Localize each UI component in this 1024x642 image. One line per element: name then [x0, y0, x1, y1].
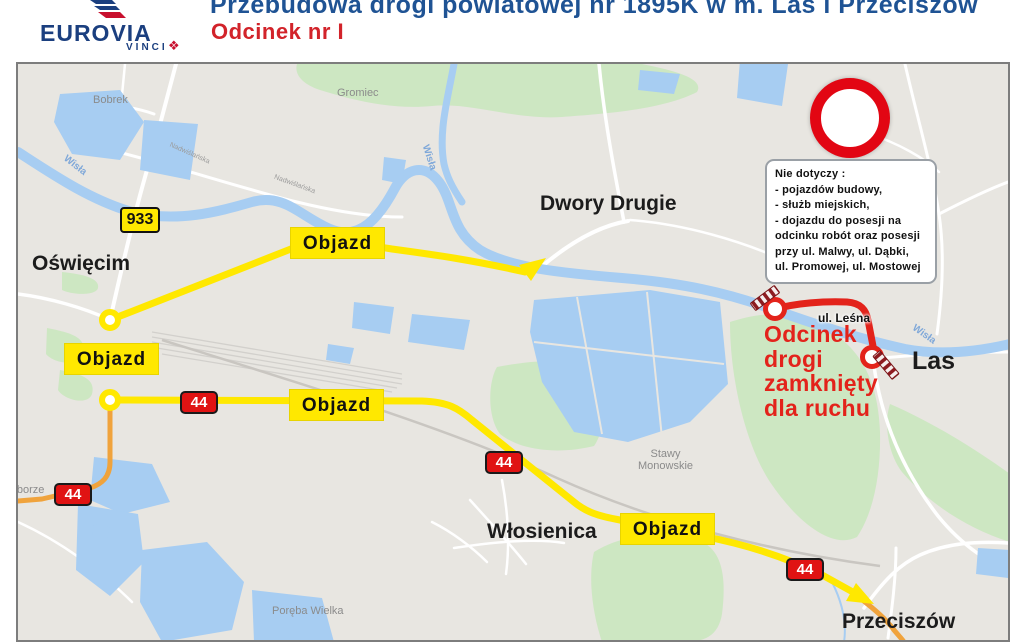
road-badge-44-center: 44: [485, 451, 523, 474]
closed-caption-line: drogi: [764, 347, 878, 372]
note-line: odcinku robót oraz posesji: [775, 229, 927, 245]
detour-arrow-southeast: [846, 583, 874, 604]
town-label-bobrek: Bobrek: [93, 94, 128, 106]
note-title: Nie dotyczy :: [775, 167, 927, 183]
note-line: ul. Promowej, ul. Mostowej: [775, 260, 927, 276]
note-line: przy ul. Malwy, ul. Dąbki,: [775, 245, 927, 261]
road-badge-44-east: 44: [786, 558, 824, 581]
note-line: - pojazdów budowy,: [775, 183, 927, 199]
exemption-note-box: Nie dotyczy : - pojazdów budowy, - służb…: [765, 159, 937, 284]
stawy-line1: Stawy: [618, 448, 713, 460]
eurovia-logo: EUROVIA VINCI ❖: [40, 0, 200, 58]
note-line: - służb miejskich,: [775, 198, 927, 214]
note-line: - dojazdu do posesji na: [775, 214, 927, 230]
stawy-line2: Monowskie: [618, 460, 713, 472]
detour-sign-west: Objazd: [64, 343, 159, 375]
detour-sign-center: Objazd: [289, 389, 384, 421]
page-subtitle: Odcinek nr I: [211, 19, 344, 45]
town-label-gromiec: Gromiec: [337, 87, 379, 99]
detour-sign-southeast: Objazd: [620, 513, 715, 545]
no-entry-sign-icon: [810, 78, 890, 158]
closed-caption-line: zamknięty: [764, 371, 878, 396]
closed-section-caption: Odcinek drogi zamknięty dla ruchu: [764, 322, 878, 420]
road-badge-44-southwest: 44: [54, 483, 92, 506]
town-label-wlosienica: Włosienica: [487, 520, 597, 544]
town-label-oswiecim: Oświęcim: [32, 252, 130, 276]
town-label-las: Las: [912, 347, 955, 376]
road-badge-44-west: 44: [180, 391, 218, 414]
closure-endpoint-west: [766, 300, 785, 319]
logo-sub-brand-text: VINCI: [126, 42, 168, 53]
detour-sign-north: Objazd: [290, 227, 385, 259]
closed-caption-line: Odcinek: [764, 322, 878, 347]
road-badge-933: 933: [120, 207, 160, 233]
detour-map-page: { "header": { "logo": { "brand": "EUROVI…: [0, 0, 1024, 640]
area-label-stawy-monowskie: Stawy Monowskie: [618, 448, 713, 472]
vinci-diamond-icon: ❖: [168, 38, 180, 54]
town-label-przeciszow: Przeciszów: [842, 610, 955, 634]
page-title: Przebudowa drogi powiatowej nr 1895K w m…: [210, 0, 978, 20]
railway-lines: [152, 332, 402, 392]
town-label-dwory-drugie: Dwory Drugie: [540, 192, 677, 216]
town-label-poreba-wielka: Poręba Wielka: [272, 605, 344, 617]
town-label-zaborze: Zaborze: [16, 484, 44, 496]
detour-map: Oświęcim Dwory Drugie Włosienica Las Prz…: [16, 62, 1010, 642]
closed-caption-line: dla ruchu: [764, 396, 878, 421]
eurovia-emblem-icon: [82, 0, 134, 20]
